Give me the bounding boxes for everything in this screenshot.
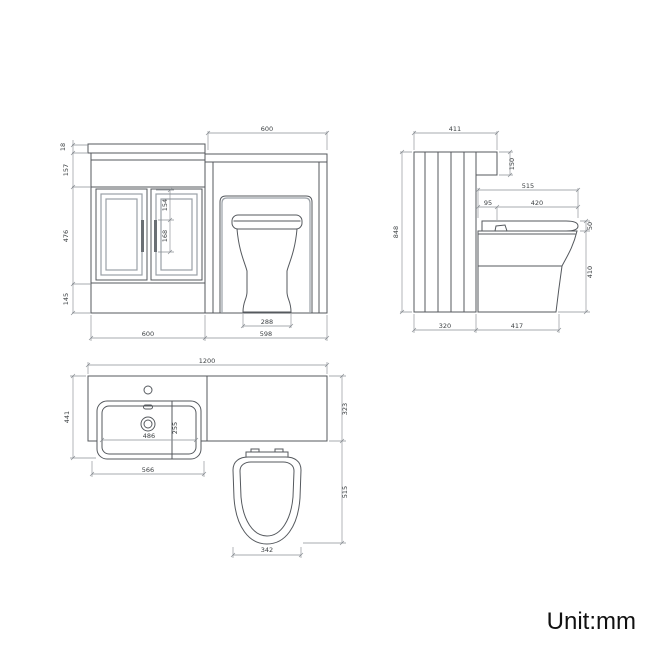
dim-side-seat-thickness: 50 bbox=[586, 222, 594, 230]
front-right-door bbox=[151, 189, 202, 280]
dim-plan-toilet-projection: 515 bbox=[341, 486, 349, 498]
dim-front-handle-offset: 154 bbox=[161, 199, 169, 211]
side-toilet-pan bbox=[478, 231, 577, 312]
plan-toilet bbox=[233, 449, 301, 544]
dim-plan-basin-width: 566 bbox=[142, 466, 154, 474]
dim-side-worktop-drop: 150 bbox=[508, 158, 516, 170]
dim-side-seat-total: 515 bbox=[522, 182, 534, 190]
dim-side-unit-depth: 320 bbox=[439, 322, 451, 330]
technical-drawing: 600 18 157 476 145 154 168 288 600 598 bbox=[0, 0, 650, 650]
side-view: 411 150 848 515 95 420 50 410 320 417 bbox=[392, 125, 594, 333]
dim-plan-unit-depth: 323 bbox=[341, 403, 349, 415]
unit-label: Unit:mm bbox=[547, 608, 636, 635]
dim-front-upper-panel: 157 bbox=[62, 164, 70, 176]
dim-side-pan-height: 410 bbox=[586, 266, 594, 278]
dim-side-seat-length: 420 bbox=[531, 199, 543, 207]
plan-drain-outer bbox=[141, 417, 155, 431]
dim-front-handle-length: 168 bbox=[161, 230, 169, 242]
dim-plan-overall-width: 1200 bbox=[199, 357, 216, 365]
front-toilet-pan bbox=[237, 229, 297, 312]
dim-plan-basin-inner-width: 486 bbox=[143, 432, 155, 440]
dim-front-plinth: 145 bbox=[62, 293, 70, 305]
front-right-door-handle bbox=[154, 220, 157, 252]
dim-side-seat-gap: 95 bbox=[484, 199, 492, 207]
front-view: 600 18 157 476 145 154 168 288 600 598 bbox=[59, 125, 329, 341]
dim-front-counter-thickness: 18 bbox=[59, 143, 67, 151]
dim-front-vanity-width: 600 bbox=[142, 330, 154, 338]
side-toilet bbox=[478, 221, 578, 312]
front-vanity-unit bbox=[88, 144, 205, 313]
dim-plan-basin-inner-depth: 255 bbox=[171, 422, 179, 434]
dim-front-wc-width: 598 bbox=[260, 330, 272, 338]
dim-side-worktop-depth: 411 bbox=[449, 125, 461, 133]
front-door-panels bbox=[101, 194, 197, 275]
front-left-door bbox=[96, 189, 147, 280]
plan-view: 1200 441 323 515 486 255 566 342 bbox=[63, 357, 349, 558]
dim-plan-seat-width: 342 bbox=[261, 546, 273, 554]
dim-front-door-height: 476 bbox=[62, 230, 70, 242]
dim-front-pan-base: 288 bbox=[261, 318, 273, 326]
plan-tap-hole bbox=[144, 386, 152, 394]
front-toilet-seat bbox=[232, 215, 302, 229]
front-left-door-handle bbox=[141, 220, 144, 252]
dim-front-wc-top-width: 600 bbox=[261, 125, 273, 133]
dim-plan-vanity-depth: 441 bbox=[63, 411, 71, 423]
dim-side-pan-projection: 417 bbox=[511, 322, 523, 330]
drawing-page: 600 18 157 476 145 154 168 288 600 598 bbox=[0, 0, 650, 650]
dim-side-overall-height: 848 bbox=[392, 226, 400, 238]
front-toilet bbox=[232, 215, 302, 312]
plan-seat-outer bbox=[233, 457, 301, 544]
